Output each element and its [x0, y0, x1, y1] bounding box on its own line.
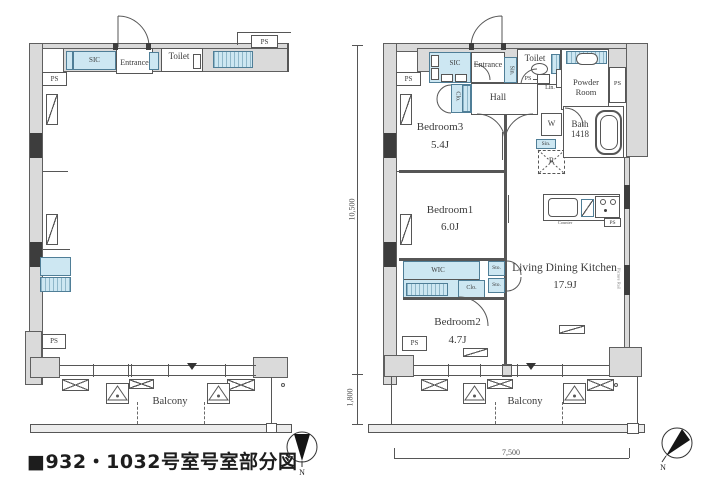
- faucet-symbol: [614, 383, 618, 387]
- powder-room-label: Powder Room: [563, 78, 609, 98]
- ps-label: PS: [42, 337, 66, 345]
- entrance-label: Entrance: [116, 58, 153, 67]
- interior-wall: [399, 170, 505, 173]
- window-sash: [60, 375, 256, 376]
- linen-label: Lin.: [542, 85, 558, 92]
- page-title: ■932・1032号室号室部分図: [27, 447, 298, 474]
- wall-segment: [287, 43, 289, 72]
- wall-outline: [237, 32, 291, 33]
- dimension-tick: [352, 45, 363, 46]
- dimension-line: [357, 45, 358, 425]
- sic-label: SIC: [73, 56, 116, 64]
- balcony-edge: [637, 377, 638, 424]
- picture-rail-label: Picture Rail: [616, 257, 621, 301]
- wall-pier: [30, 357, 60, 378]
- wall-outline: [237, 32, 238, 45]
- ac-unit-box: [487, 379, 513, 389]
- bedroom2-size: 4.7J: [430, 334, 485, 347]
- evac-hatch-icon: [207, 383, 230, 404]
- balcony-label: Balcony: [495, 396, 555, 408]
- compass-north-label: N: [660, 463, 666, 472]
- door-jamb: [469, 43, 474, 50]
- wall-pier: [253, 357, 288, 378]
- ps-label: PS: [396, 75, 421, 83]
- ps-label: PS: [604, 220, 621, 226]
- sin-label: Sin.: [508, 58, 515, 82]
- door-jamb: [146, 43, 151, 50]
- window-symbol: [624, 185, 630, 209]
- door-jamb: [113, 43, 118, 50]
- burner-icon: [610, 199, 616, 205]
- sliding-door: [508, 195, 509, 223]
- entrance-door-arc: [471, 16, 503, 48]
- window-symbol: [384, 242, 396, 267]
- evac-hatch-icon: [106, 383, 129, 404]
- hall-closet-hatch: [462, 85, 471, 112]
- balcony-slab: [30, 424, 292, 433]
- dimension-tick: [394, 448, 395, 458]
- balcony-partition-line: [562, 402, 563, 424]
- shoe-shelf: [441, 74, 453, 82]
- bedroom1-label: Bedroom1: [420, 204, 480, 217]
- ldk-label: Living Dining Kitchen: [507, 262, 622, 275]
- balcony-partition-line: [204, 402, 205, 424]
- ldk-size: 17.9J: [535, 279, 595, 292]
- sto-label: Sto.: [488, 265, 505, 271]
- clo-label: Clo.: [454, 85, 461, 107]
- window-symbol: [400, 214, 412, 245]
- burner-icon: [604, 209, 607, 212]
- counter-label: Counter: [545, 220, 585, 225]
- shoe-cabinet: [149, 52, 159, 70]
- toilet-label: Toilet: [161, 51, 197, 61]
- dimension-width: 7,500: [476, 448, 546, 457]
- toilet-tank: [193, 54, 201, 69]
- ps-arrow: [533, 79, 538, 80]
- window-symbol: [624, 265, 630, 295]
- evac-hatch-icon: [463, 383, 486, 404]
- sash-tick: [562, 364, 563, 377]
- folding-door-arc: [437, 85, 451, 99]
- window-symbol: [46, 94, 58, 125]
- burner-icon: [600, 199, 606, 205]
- diagonal-rect-symbol: [463, 348, 488, 357]
- ps-label: PS: [609, 80, 626, 87]
- dimension-depth-balcony: 1,800: [346, 376, 355, 420]
- shoe-cabinet: [66, 51, 73, 70]
- entry-marker-icon: [187, 363, 197, 370]
- ps-label: PS: [402, 339, 427, 347]
- stove: [595, 196, 620, 218]
- entry-marker-icon: [526, 363, 536, 370]
- wall-segment: [626, 43, 648, 157]
- evac-hatch-icon: [563, 383, 586, 404]
- sash-tick: [448, 364, 449, 377]
- wall-pier: [609, 347, 642, 377]
- sash-tick: [480, 364, 481, 377]
- compass-north-label: N: [299, 468, 305, 477]
- bedroom1-size: 6.0J: [425, 221, 475, 234]
- ac-unit-box: [587, 379, 614, 391]
- ps-shaft: [537, 74, 550, 84]
- wash-basin-icon: [576, 53, 598, 65]
- sash-tick: [168, 364, 169, 377]
- ac-unit-box: [129, 379, 154, 389]
- door-arc: [477, 114, 505, 142]
- folding-door-arc: [437, 99, 451, 113]
- wall-segment: [383, 43, 397, 385]
- closet: [213, 51, 253, 68]
- sash-tick: [517, 364, 518, 377]
- compass-icon: N: [655, 425, 697, 473]
- hall-label: Hall: [478, 93, 518, 104]
- bedroom3-size: 5.4J: [415, 139, 465, 152]
- window-symbol: [30, 133, 42, 158]
- drain-box: [266, 423, 277, 433]
- sash-tick: [131, 364, 132, 377]
- toilet-label: Toilet: [518, 53, 552, 63]
- dimension-depth-main: 10,500: [348, 188, 357, 232]
- window-sash: [414, 365, 609, 366]
- bath-size-label: 1418: [564, 129, 596, 139]
- ps-label: PS: [42, 75, 67, 83]
- floorplan-canvas: PS SIC Entrance Toilet PS PS: [0, 0, 722, 499]
- balcony-edge: [391, 377, 392, 424]
- door-arc: [507, 277, 521, 291]
- door-arc: [565, 108, 583, 126]
- window-symbol: [46, 214, 58, 245]
- door-arc: [459, 297, 488, 326]
- sin-label: Sin.: [536, 141, 556, 147]
- wic-hanger: [406, 283, 448, 296]
- ps-label: PS: [251, 38, 278, 46]
- shoe-shelf: [431, 68, 439, 80]
- ac-unit-box: [227, 379, 255, 391]
- sto-label: Sto.: [488, 282, 505, 288]
- faucet-symbol: [281, 383, 285, 387]
- dishwasher: [581, 199, 594, 217]
- closet: [40, 277, 71, 292]
- wall-pier: [384, 355, 414, 377]
- closet-bracket: [43, 249, 70, 250]
- washer-label: W: [541, 119, 562, 128]
- dimension-tick: [629, 448, 630, 458]
- window-symbol: [384, 133, 396, 158]
- bathtub-inner: [600, 115, 618, 150]
- dimension-line: [394, 458, 629, 459]
- door-arc: [505, 114, 533, 142]
- sash-tick: [128, 364, 129, 377]
- door-arc: [474, 64, 490, 80]
- ac-unit-box: [421, 379, 448, 391]
- interior-wall: [403, 297, 505, 300]
- diagonal-rect-symbol: [559, 325, 585, 334]
- fridge-label: R: [538, 156, 565, 165]
- sash-tick: [225, 364, 226, 377]
- wic-label: WIC: [418, 266, 458, 274]
- shoe-shelf: [455, 74, 467, 82]
- bedroom3-label: Bedroom3: [410, 121, 470, 134]
- sliding-door: [502, 132, 503, 160]
- balcony-edge: [271, 377, 272, 424]
- sash-tick: [93, 364, 94, 377]
- kitchen-sink-icon: [548, 198, 578, 217]
- balcony-label: Balcony: [140, 396, 200, 408]
- closet: [40, 257, 71, 276]
- balcony-partition-line: [137, 402, 138, 424]
- interior-wall: [504, 115, 507, 260]
- entrance-door-arc: [117, 16, 149, 48]
- window-sash: [60, 365, 256, 366]
- balcony-slab: [368, 424, 645, 433]
- wall-stub: [43, 171, 68, 172]
- ac-unit-box: [62, 379, 89, 391]
- window-sash: [414, 375, 609, 376]
- drain-box: [627, 423, 639, 434]
- dimension-tick: [352, 424, 363, 425]
- door-jamb: [501, 43, 506, 50]
- sic-label: SIC: [437, 59, 473, 67]
- clo-label: Clo.: [458, 285, 485, 292]
- balcony-partition-line: [495, 402, 496, 424]
